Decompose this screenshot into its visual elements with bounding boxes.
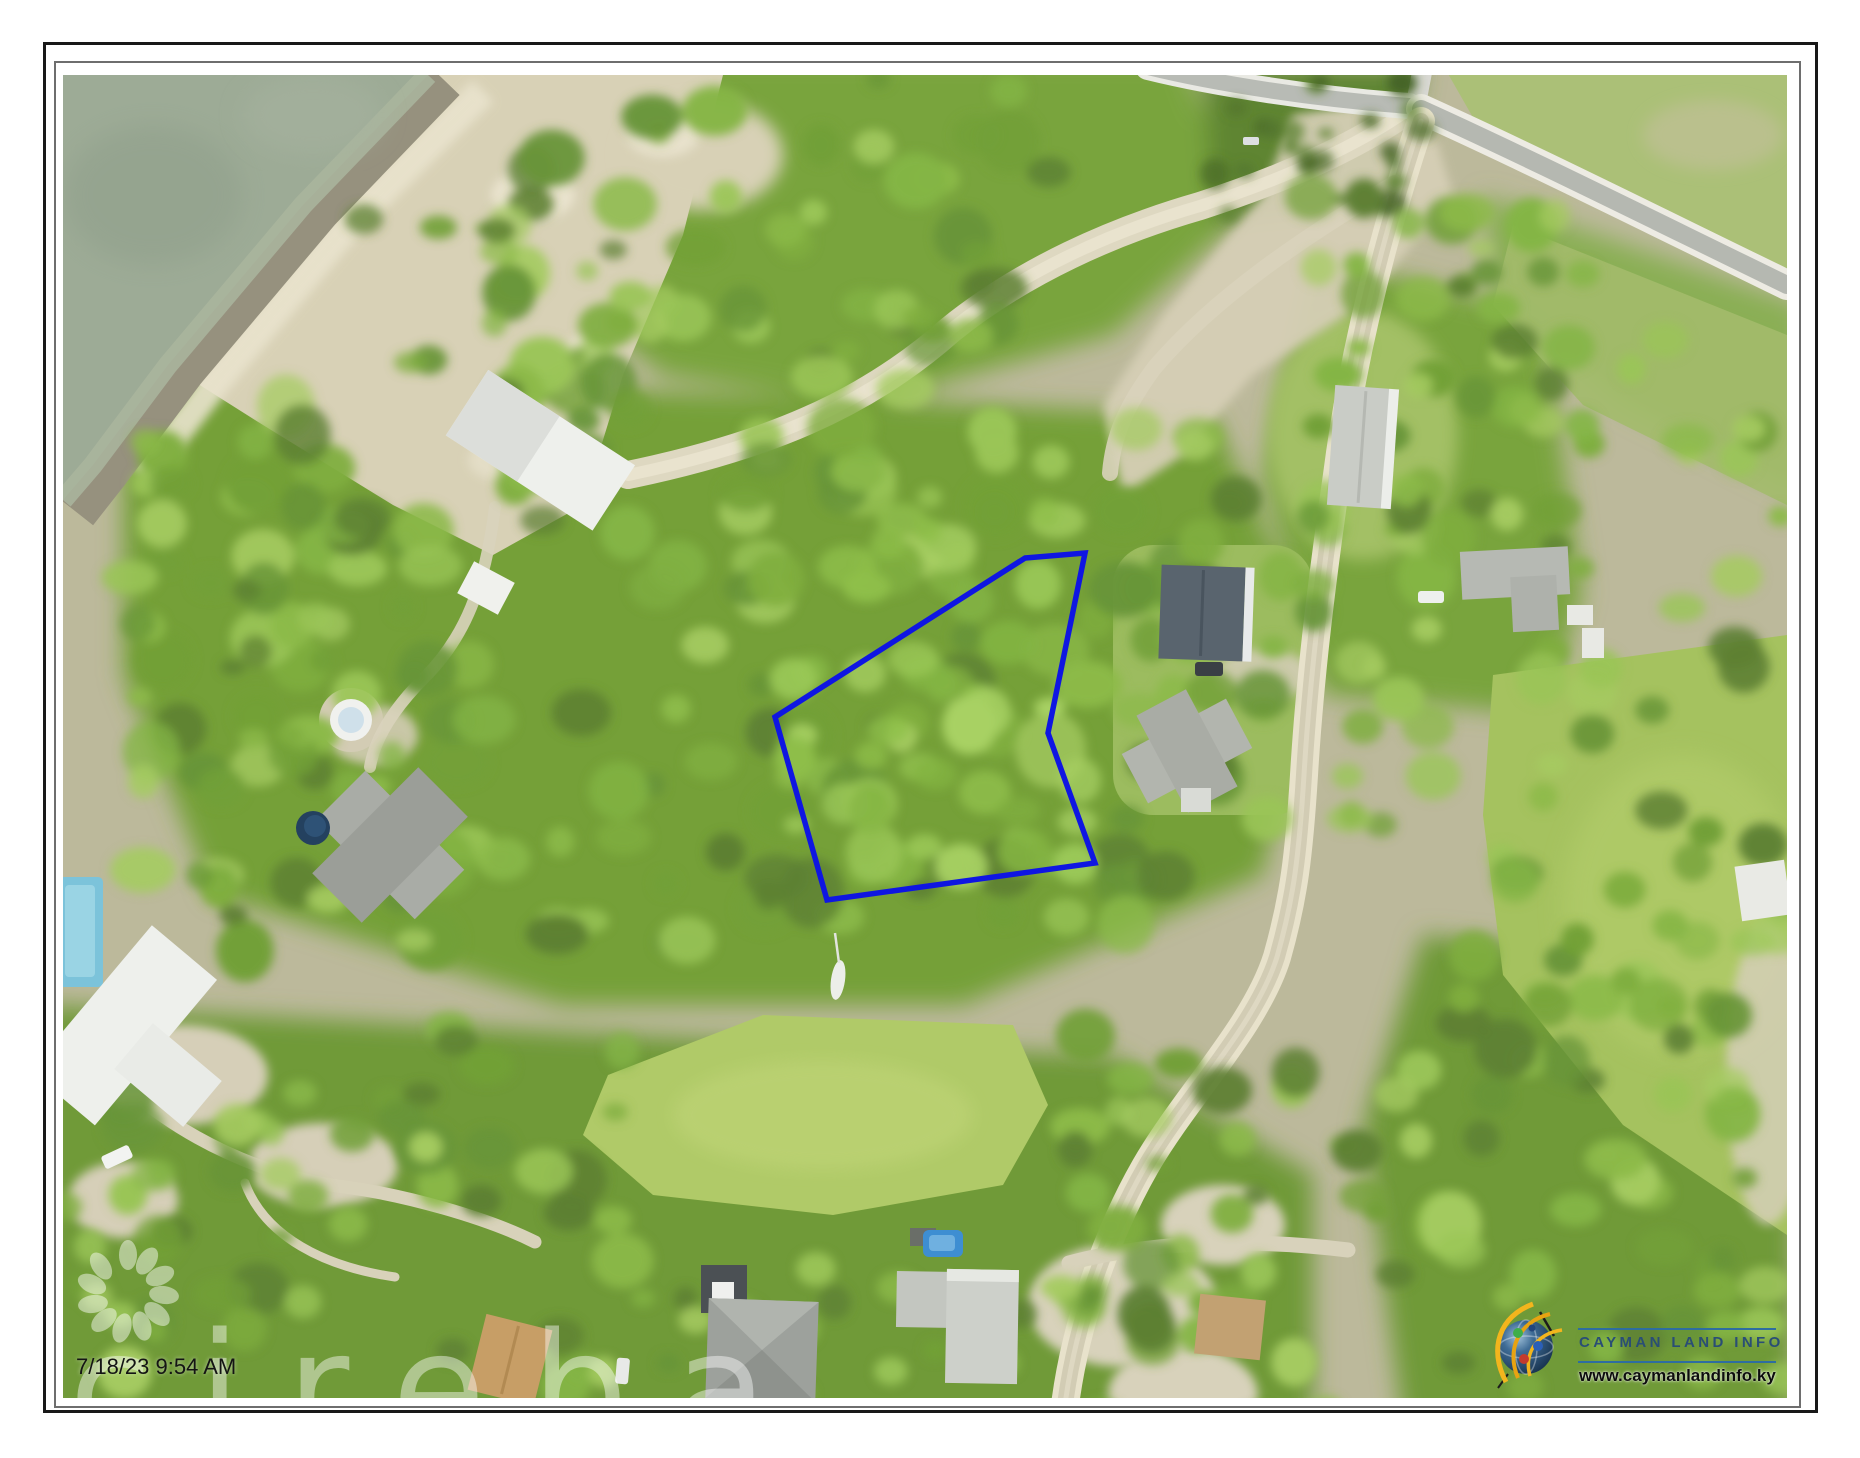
car — [1195, 662, 1223, 676]
brand-rule — [1578, 1328, 1776, 1330]
small-shed — [1181, 788, 1211, 812]
dark-roof-house — [1158, 565, 1254, 662]
car — [1418, 591, 1444, 603]
shed — [1567, 605, 1593, 625]
rect-pool — [63, 877, 103, 987]
car — [1243, 137, 1259, 145]
house-top-right — [1327, 385, 1399, 509]
aerial-photo: cireba 7/18/23 9:54 AM CAYMAN LAND INFO — [63, 75, 1787, 1398]
brand-name: CAYMAN LAND INFO — [1579, 1334, 1784, 1351]
globe-network-icon — [1478, 1300, 1578, 1398]
tan-house-right — [1194, 1294, 1266, 1361]
white-building-right-edge — [1734, 860, 1787, 921]
property-map-page: cireba 7/18/23 9:54 AM CAYMAN LAND INFO — [0, 0, 1860, 1458]
aerial-scene — [63, 75, 1787, 1398]
blue-tarp — [923, 1230, 963, 1257]
brand-rule — [1578, 1361, 1776, 1363]
brand-website: www.caymanlandinfo.ky — [1579, 1366, 1776, 1386]
capture-timestamp: 7/18/23 9:54 AM — [76, 1354, 236, 1380]
shed — [1582, 628, 1604, 658]
brand-block: CAYMAN LAND INFO www.caymanlandinfo.ky — [1478, 1300, 1783, 1398]
